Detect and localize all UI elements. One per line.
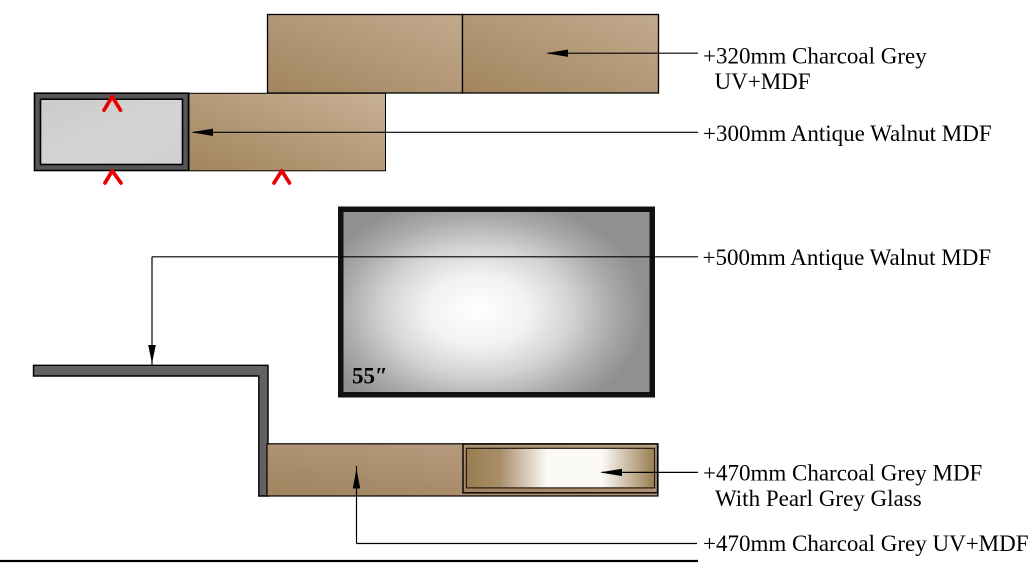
svg-text:+300mm Antique Walnut MDF: +300mm Antique Walnut MDF xyxy=(703,121,992,146)
svg-text:+500mm Antique Walnut MDF: +500mm Antique Walnut MDF xyxy=(703,245,992,270)
svg-text:55″: 55″ xyxy=(352,364,388,389)
svg-text:With Pearl Grey Glass: With Pearl Grey Glass xyxy=(715,486,922,511)
svg-text:+320mm Charcoal Grey: +320mm Charcoal Grey xyxy=(703,44,927,69)
svg-text:UV+MDF: UV+MDF xyxy=(715,69,811,94)
svg-text:+470mm Charcoal Grey UV+MDF: +470mm Charcoal Grey UV+MDF xyxy=(703,531,1029,556)
svg-text:+470mm Charcoal Grey MDF: +470mm Charcoal Grey MDF xyxy=(703,460,982,485)
